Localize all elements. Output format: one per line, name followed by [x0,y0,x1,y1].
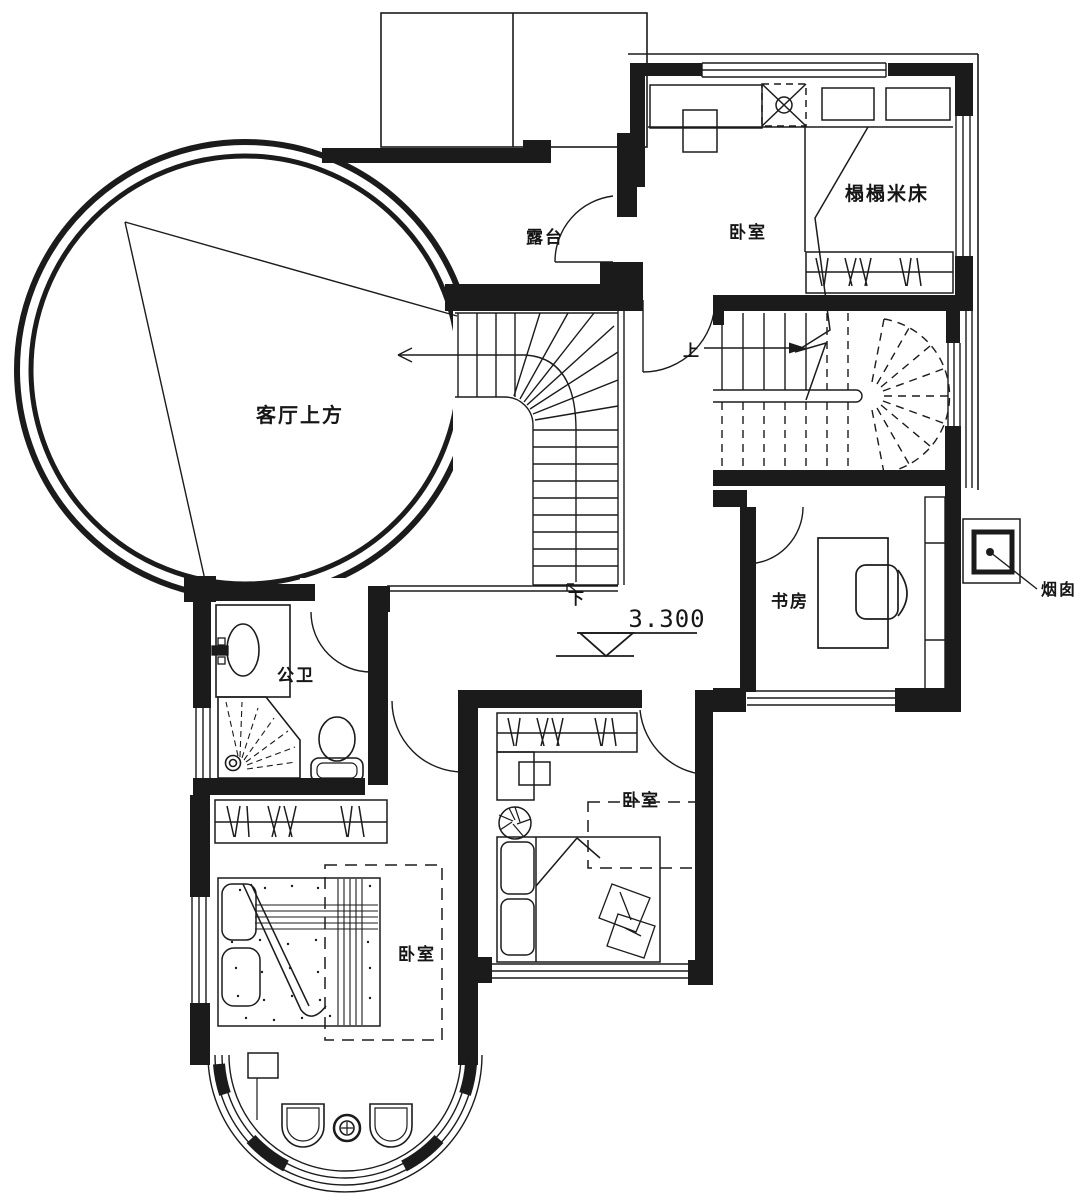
bay-window-wall [208,1055,482,1192]
wardrobe-left [215,800,387,843]
room-label-living-above: 客厅上方 [255,403,344,427]
elevation-marker [556,633,697,656]
room-label-terrace: 露台 [526,227,564,248]
elevation-value: 3.300 [628,605,705,633]
stair-floor-patch [453,311,623,587]
toilet [311,717,363,782]
room-label-study: 书房 [771,591,809,612]
quilt-band-h [255,905,378,929]
chair [856,565,898,619]
shower [218,697,300,778]
bedroom-middle-furniture [497,713,697,962]
room-label-bathroom: 公卫 [277,666,315,686]
up-arrow [704,343,806,354]
window-top-bedroom-east [956,113,970,256]
nightstand [248,1053,278,1078]
room-label-bedroom-top: 卧室 [729,222,767,243]
window-stair-east [948,343,960,426]
label-stair-down: 下 [568,589,586,608]
bathroom-fixtures [212,605,363,782]
label-tatami-bed: 榻榻米床 [845,182,929,205]
pillow [222,948,260,1006]
cabinet [497,752,534,800]
plant-symbol [499,807,531,839]
desk [818,538,888,648]
circular-wall [17,142,473,598]
ceiling-dashed-outline [588,802,697,868]
window-bedroom-left-west [192,897,206,1003]
wardrobe-middle [497,713,637,752]
cushions [599,884,655,958]
floor-plan-page: 客厅上方 露台 卧室 榻榻米床 书房 烟囱 公卫 卧室 卧室 上 下 3.300 [0,0,1080,1198]
pillow [501,899,534,955]
label-stair-up: 上 [683,341,701,360]
sink-basin [227,624,259,676]
study-furniture [818,497,945,690]
door-bedroom-left [392,700,463,772]
chair-back [898,570,907,616]
fan-stair-treads [872,319,948,473]
door-bathroom [311,612,371,676]
room-label-bedroom-left: 卧室 [398,944,436,965]
window-top-bedroom-north [702,63,886,77]
pillow [501,842,534,894]
blanket-fold [536,838,600,886]
quilt-band-v [338,879,362,1025]
room-label-bedroom-middle: 卧室 [622,790,660,811]
floor-plan-drawing: 客厅上方 露台 卧室 榻榻米床 书房 烟囱 公卫 卧室 卧室 上 下 3.300 [0,0,1080,1198]
skylight [762,84,806,126]
study-cabinet [925,497,945,690]
window-bedroom-middle-south [492,964,688,978]
wardrobe-tatami [806,252,953,293]
door-bedroom-top [643,300,715,372]
pillow [222,884,256,940]
window-stair-outer-frame [966,311,972,488]
window-bathroom-west [196,707,210,778]
faucet [212,638,228,664]
window-study-south [747,691,895,705]
label-chimney: 烟囱 [1041,580,1077,599]
bay-seating [282,1104,412,1147]
chimney-symbol [963,519,1037,589]
